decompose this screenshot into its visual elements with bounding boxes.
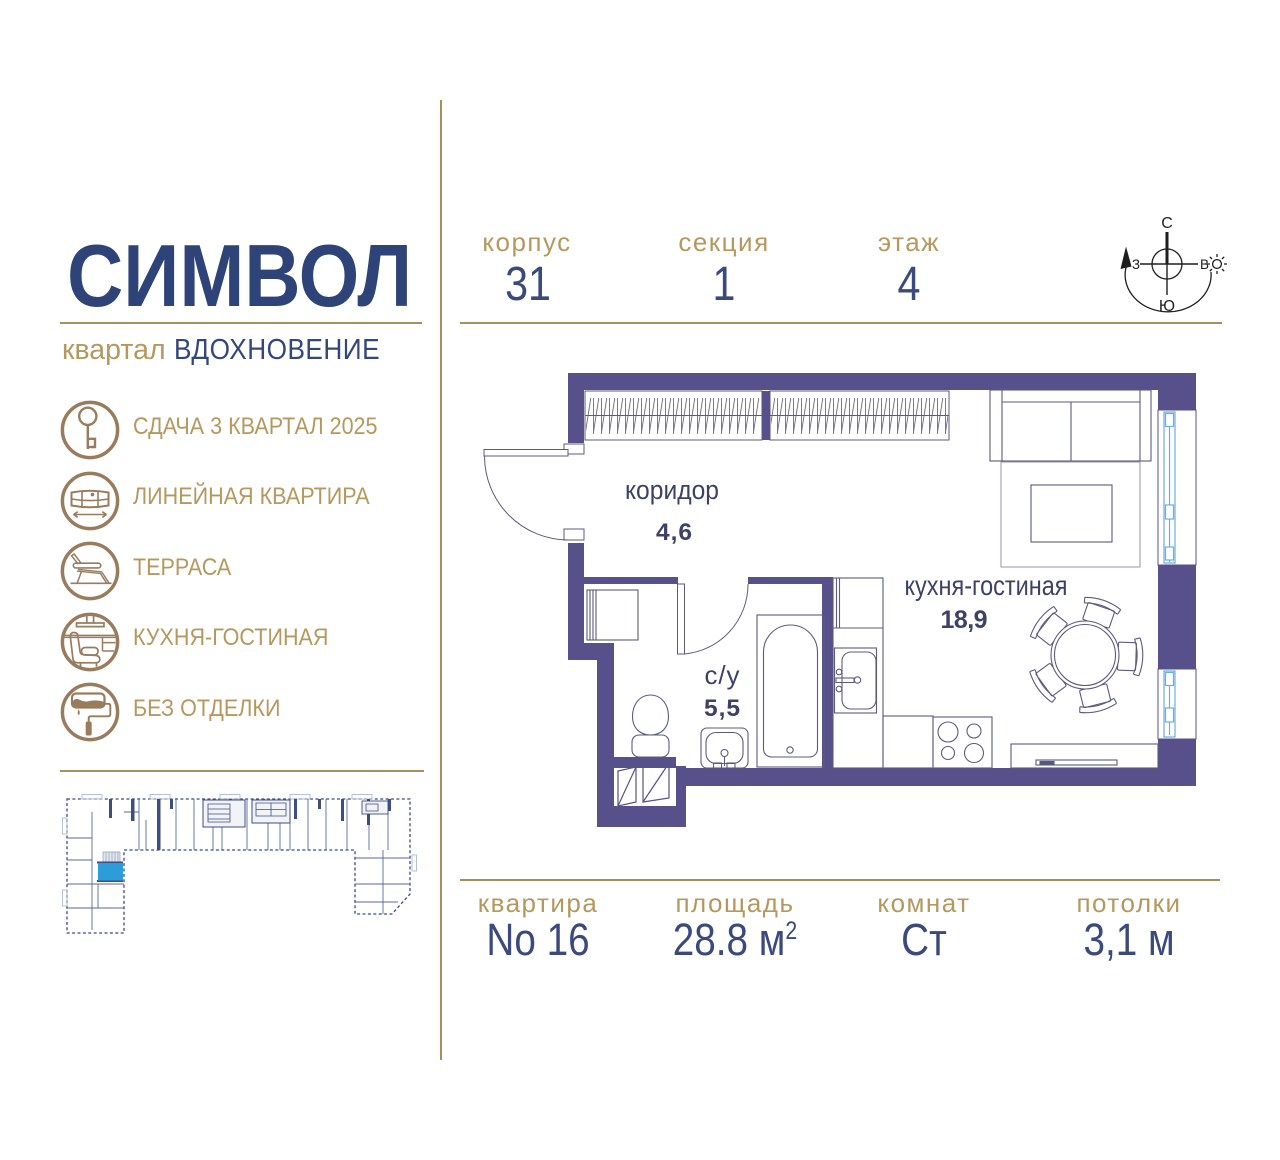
svg-text:18,9: 18,9	[941, 606, 988, 634]
svg-text:4,6: 4,6	[656, 519, 692, 546]
svg-text:5,5: 5,5	[704, 695, 740, 722]
svg-text:С: С	[1161, 215, 1173, 232]
svg-text:с/у: с/у	[705, 660, 740, 690]
svg-text:коридор: коридор	[625, 475, 719, 505]
svg-text:З: З	[1132, 257, 1140, 272]
svg-text:кухня-гостиная: кухня-гостиная	[905, 570, 1068, 601]
